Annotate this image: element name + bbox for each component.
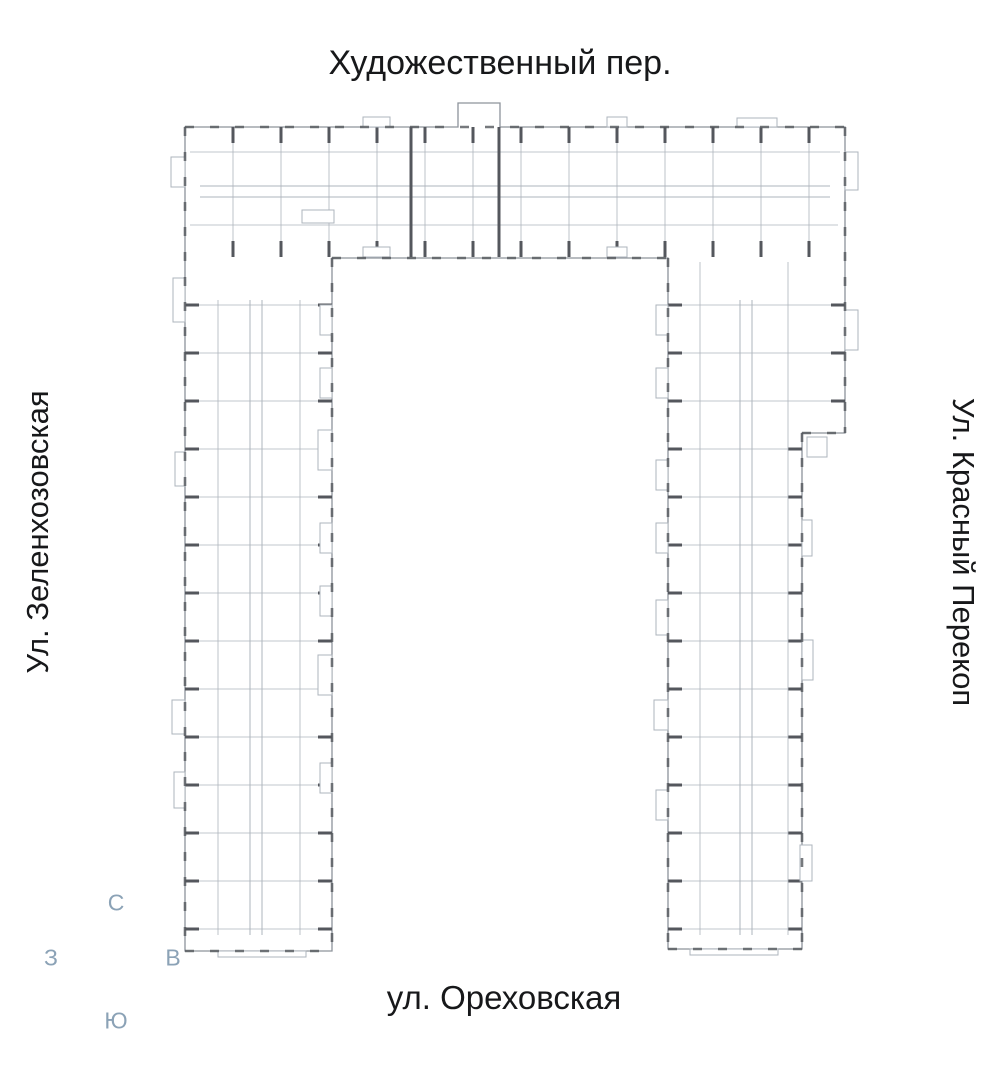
compass-south-label: Ю <box>104 1008 127 1035</box>
floorplan-page: Художественный пер. Ул. Зеленхозовская У… <box>0 0 1000 1067</box>
street-label-left: Ул. Зеленхозовская <box>20 390 56 673</box>
compass-east-label: В <box>165 945 180 972</box>
building-outline <box>185 103 845 951</box>
floorplan-canvas[interactable] <box>0 0 1000 1067</box>
compass-north-label: С <box>108 890 125 917</box>
street-label-bottom: ул. Ореховская <box>387 979 622 1017</box>
street-label-right: Ул. Красный Перекоп <box>945 398 981 706</box>
street-label-top: Художественный пер. <box>328 44 671 83</box>
compass-west-label: З <box>44 945 58 972</box>
stair-elevator-cores <box>302 210 334 223</box>
